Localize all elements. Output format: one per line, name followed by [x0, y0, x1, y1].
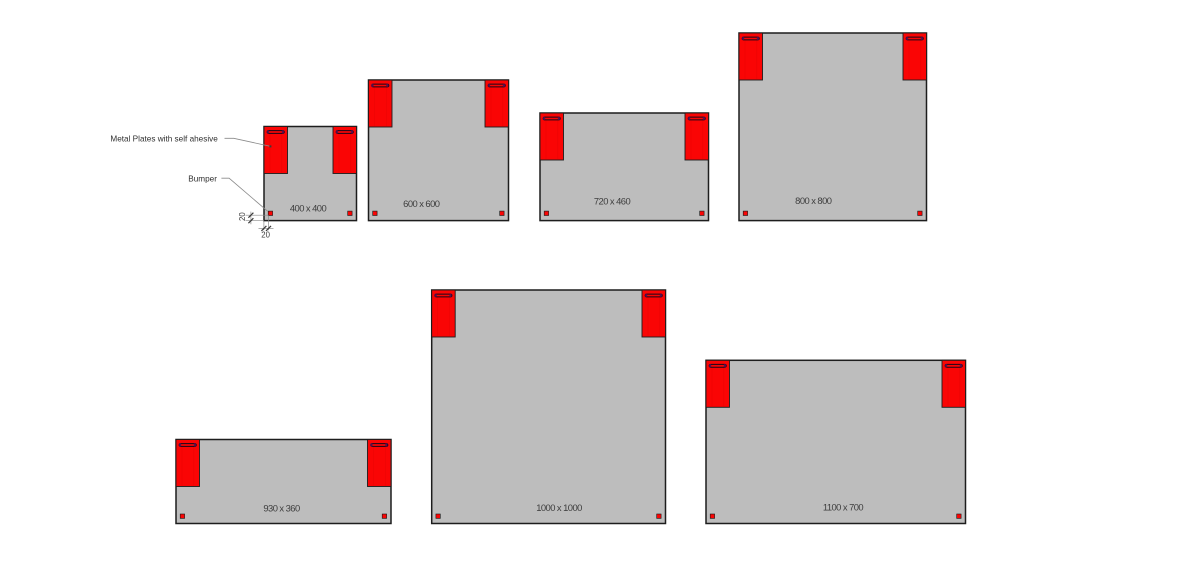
- svg-text:20: 20: [261, 231, 270, 240]
- svg-text:930 x 360: 930 x 360: [263, 503, 300, 514]
- svg-text:400 x 400: 400 x 400: [290, 202, 327, 213]
- svg-text:20: 20: [238, 212, 247, 221]
- svg-text:Bumper: Bumper: [188, 174, 217, 183]
- svg-text:Metal Plates with self ahesive: Metal Plates with self ahesive: [110, 134, 218, 143]
- svg-text:720 x 460: 720 x 460: [594, 196, 631, 207]
- svg-text:1000 x 1000: 1000 x 1000: [536, 502, 582, 513]
- svg-text:1100 x 700: 1100 x 700: [823, 502, 864, 513]
- svg-text:800 x 800: 800 x 800: [795, 195, 832, 206]
- svg-text:600 x 600: 600 x 600: [403, 198, 440, 209]
